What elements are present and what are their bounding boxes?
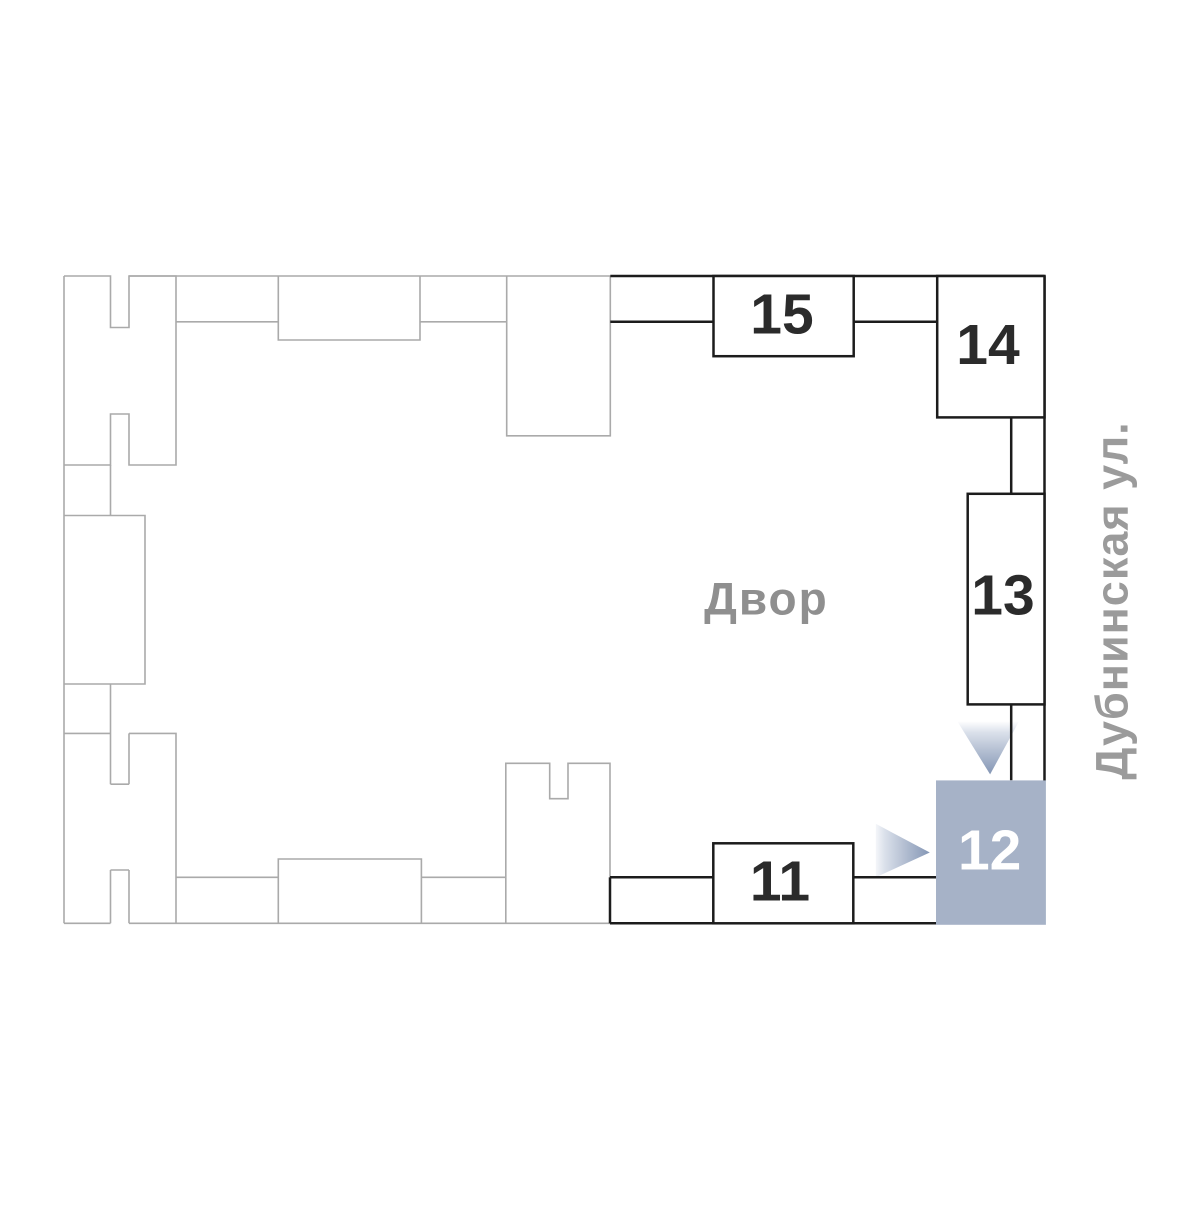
svg-text:11: 11 <box>750 850 810 914</box>
svg-text:15: 15 <box>750 282 813 346</box>
svg-text:12: 12 <box>958 818 1021 882</box>
svg-text:14: 14 <box>956 313 1020 377</box>
svg-text:Двор: Двор <box>704 573 829 625</box>
svg-text:13: 13 <box>971 564 1034 628</box>
svg-text:Дубнинская ул.: Дубнинская ул. <box>1087 421 1138 779</box>
